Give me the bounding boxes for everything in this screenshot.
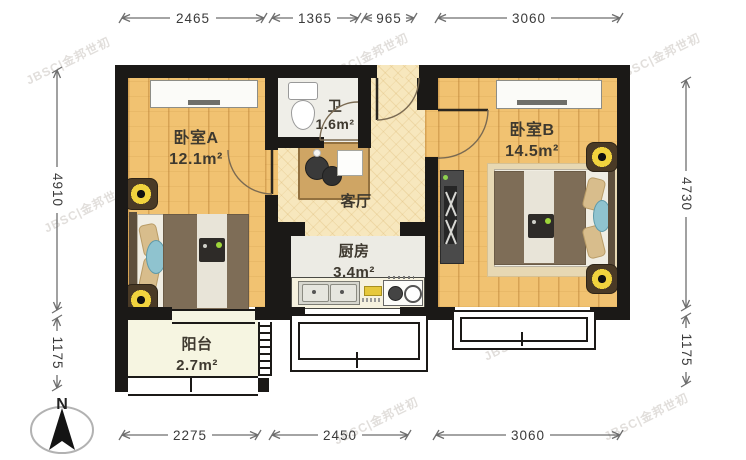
bedroom-b-bed-headboard xyxy=(608,170,615,266)
bedroom-b-window-mullion xyxy=(521,332,523,346)
watermark: JBSC|金邦世初 xyxy=(601,389,691,445)
dimension-left-1: 4910 xyxy=(50,67,65,313)
plate xyxy=(337,150,363,176)
room-name: 卧室A xyxy=(136,128,256,149)
wall-bottom xyxy=(115,307,172,320)
dim-value: 4730 xyxy=(679,177,694,211)
burner xyxy=(404,285,422,303)
wall-top-left xyxy=(115,65,377,78)
room-area: 12.1m² xyxy=(136,149,256,170)
dimension-top-4: 3060 xyxy=(435,11,623,26)
tv xyxy=(444,186,457,244)
tray-green-dot xyxy=(216,242,222,248)
bedroom-b-bay-window-inner xyxy=(460,317,588,342)
dimension-right-2: 1175 xyxy=(679,313,694,387)
tray-speck xyxy=(203,244,207,248)
room-name: 客厅 xyxy=(316,191,396,212)
bedroom-a-door-opening xyxy=(265,150,278,195)
dim-value: 4910 xyxy=(50,173,65,207)
wall-kitchen-left xyxy=(278,236,291,307)
room-area: 3.4m² xyxy=(314,262,394,283)
bedroom-b-label: 卧室B 14.5m² xyxy=(472,120,592,162)
room-area: 1.6m² xyxy=(303,115,367,133)
north-arrow-icon xyxy=(49,408,75,450)
dim-value: 2465 xyxy=(176,11,210,26)
bedroom-a-tray xyxy=(199,238,225,262)
bedroom-a-label: 卧室A 12.1m² xyxy=(136,128,256,170)
kitchen-bay-window-inner xyxy=(298,322,420,360)
wall-bedroom-a xyxy=(265,195,278,307)
wall-kitchen-stub xyxy=(278,222,305,236)
dish-rack xyxy=(362,298,382,302)
living-room-label: 客厅 xyxy=(316,191,396,212)
watermark: JBSC|金邦世初 xyxy=(23,33,113,89)
balcony-side-window xyxy=(258,322,272,376)
kitchen-label: 厨房 3.4m² xyxy=(314,241,394,283)
room-name: 阳台 xyxy=(137,334,257,355)
wall-bottom xyxy=(590,307,630,320)
floorplan-canvas: JBSC|金邦世初 JBSC|金邦世初 JBSC|金邦世初 JBSC|金邦世初 … xyxy=(0,0,746,460)
dimension-right-1: 4730 xyxy=(679,77,694,311)
tray-speck xyxy=(532,220,536,224)
sink-drain xyxy=(340,290,344,294)
wall-bedroom-a xyxy=(265,78,278,150)
dim-value: 1175 xyxy=(50,336,65,369)
dimension-top-2: 1365 xyxy=(269,11,361,26)
sink-drain xyxy=(312,290,316,294)
bedroom-b-wardrobe-handle xyxy=(517,100,567,105)
kitchen-window-mullion xyxy=(356,352,358,368)
wall-bathroom-bottom xyxy=(278,137,324,148)
wall-right xyxy=(617,65,630,310)
cutting-board xyxy=(364,286,382,296)
room-area: 2.7m² xyxy=(137,355,257,376)
wall-top-right xyxy=(419,65,630,78)
bedroom-b-tray xyxy=(528,214,554,238)
wall-left xyxy=(115,65,128,320)
dim-value: 3060 xyxy=(511,428,545,443)
burner xyxy=(388,286,403,301)
room-name: 厨房 xyxy=(314,241,394,262)
dimension-top-3: 965 xyxy=(361,11,417,26)
dimension-top-1: 2465 xyxy=(119,11,267,26)
room-name: 卫 xyxy=(303,97,367,115)
entrance-opening-floor xyxy=(377,65,419,78)
room-area: 14.5m² xyxy=(472,141,592,162)
balcony-door-window xyxy=(172,309,255,324)
tv-stand-plant xyxy=(443,175,448,180)
dimension-bottom-3: 3060 xyxy=(433,428,623,443)
cup xyxy=(313,149,321,157)
bathroom-label: 卫 1.6m² xyxy=(303,97,367,133)
wall-balcony-left xyxy=(115,320,128,392)
bedroom-a-speaker-lamp xyxy=(124,178,158,210)
balcony-window-mullion xyxy=(190,376,192,392)
balcony-label: 阳台 2.7m² xyxy=(137,334,257,376)
balcony-bottom-window xyxy=(128,376,258,396)
wall-kitchen-stub xyxy=(400,222,425,236)
tray-green-dot xyxy=(545,218,551,224)
room-name: 卧室B xyxy=(472,120,592,141)
bedroom-b-door-opening xyxy=(425,110,438,157)
bedroom-a-wardrobe-handle xyxy=(188,100,220,105)
dim-value: 2275 xyxy=(173,428,207,443)
watermark: JBSC|金邦世初 xyxy=(331,393,421,449)
dim-value: 965 xyxy=(376,11,402,26)
dim-value: 1365 xyxy=(298,11,332,26)
dim-value: 1175 xyxy=(679,333,694,366)
dimension-bottom-1: 2275 xyxy=(119,428,261,443)
north-compass: N xyxy=(31,396,93,453)
bedroom-b-speaker-lamp xyxy=(586,264,618,294)
wall-bedroom-b xyxy=(425,157,438,307)
dimension-left-2: 1175 xyxy=(50,315,65,391)
north-label: N xyxy=(56,396,68,413)
dim-value: 3060 xyxy=(512,11,546,26)
wall-bedroom-b-pillar xyxy=(417,78,438,110)
